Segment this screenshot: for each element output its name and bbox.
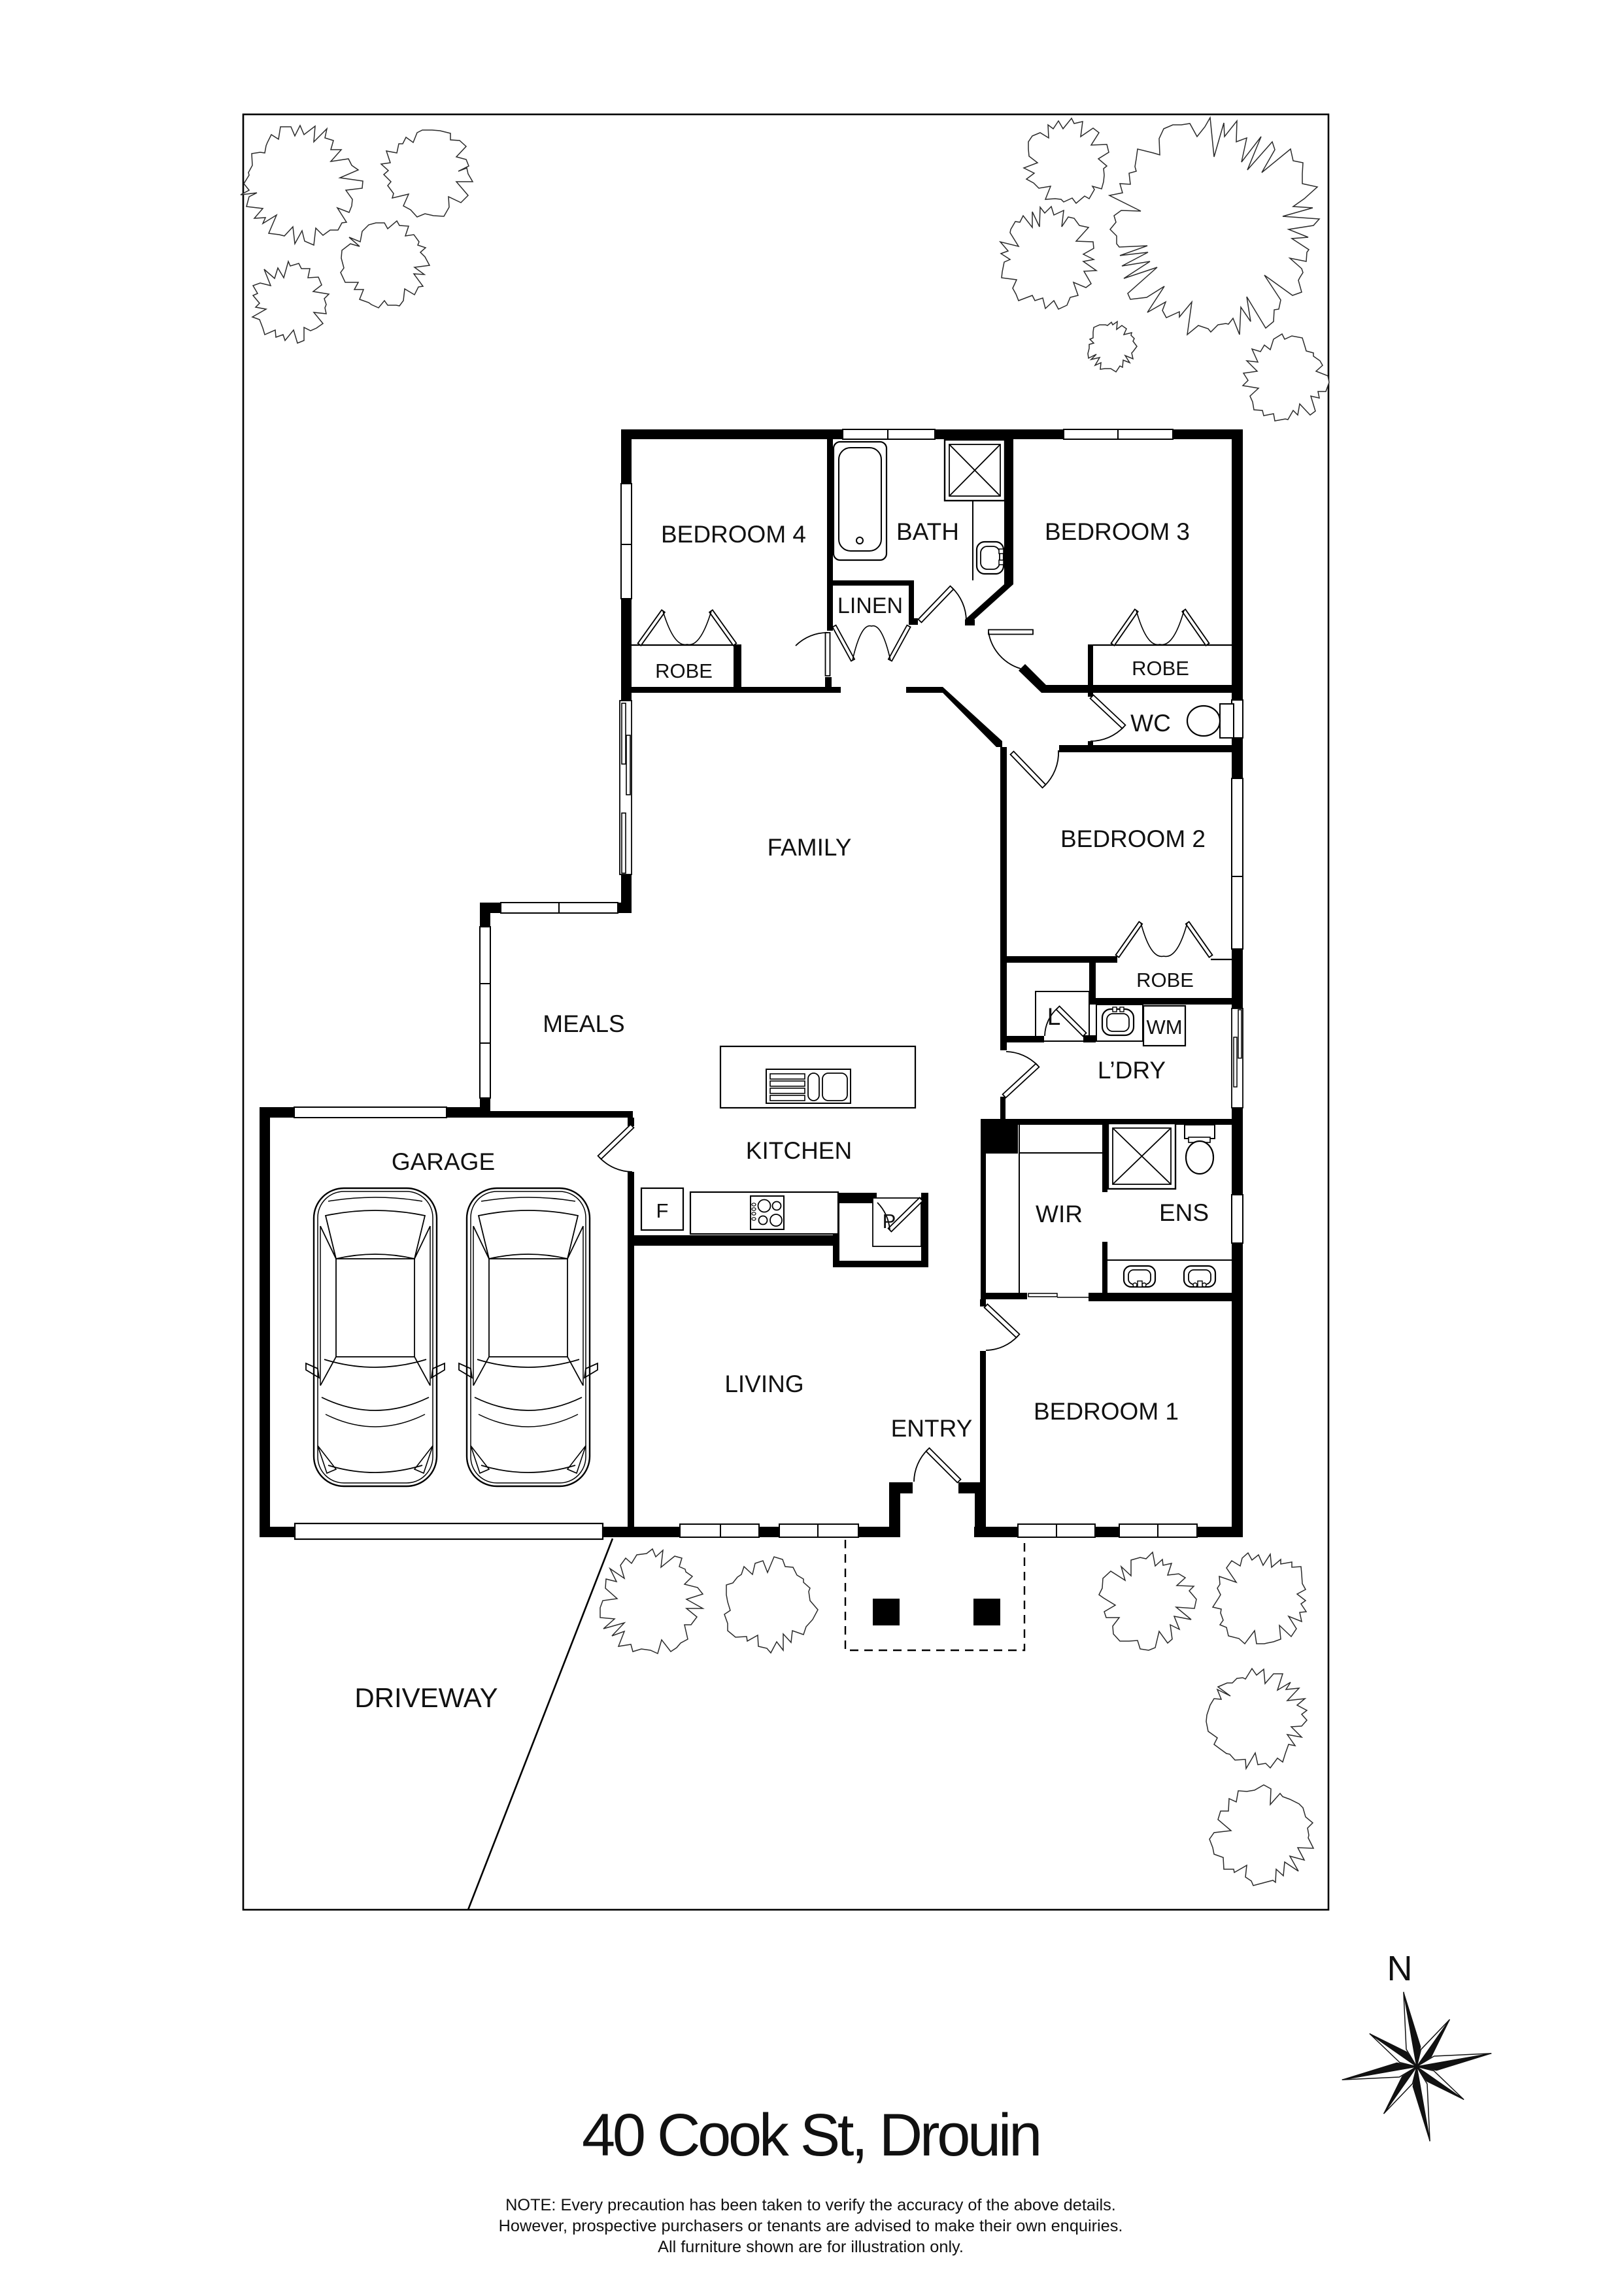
svg-text:WM: WM bbox=[1146, 1016, 1182, 1039]
svg-text:MEALS: MEALS bbox=[543, 1010, 624, 1037]
svg-text:P: P bbox=[883, 1210, 896, 1233]
svg-text:ROBE: ROBE bbox=[655, 659, 713, 682]
svg-text:KITCHEN: KITCHEN bbox=[746, 1137, 852, 1164]
svg-text:LINEN: LINEN bbox=[837, 593, 903, 618]
svg-text:NOTE: Every precaution has bee: NOTE: Every precaution has been taken to… bbox=[505, 2196, 1116, 2214]
svg-text:BEDROOM 3: BEDROOM 3 bbox=[1045, 518, 1190, 545]
svg-text:N: N bbox=[1387, 1949, 1413, 1988]
svg-text:F: F bbox=[656, 1199, 669, 1222]
svg-text:ENTRY: ENTRY bbox=[891, 1415, 973, 1442]
svg-text:40 Cook St, Drouin: 40 Cook St, Drouin bbox=[582, 2102, 1039, 2169]
svg-text:GARAGE: GARAGE bbox=[392, 1148, 495, 1175]
svg-text:WC: WC bbox=[1130, 710, 1171, 737]
svg-text:ENS: ENS bbox=[1159, 1199, 1209, 1226]
svg-text:BATH: BATH bbox=[896, 518, 959, 545]
svg-text:BEDROOM 1: BEDROOM 1 bbox=[1034, 1398, 1179, 1425]
svg-text:ROBE: ROBE bbox=[1132, 657, 1189, 680]
svg-text:L: L bbox=[1047, 1003, 1061, 1030]
svg-text:ROBE: ROBE bbox=[1136, 969, 1194, 991]
svg-text:WIR: WIR bbox=[1036, 1201, 1083, 1227]
svg-text:All furniture shown are for il: All furniture shown are for illustration… bbox=[658, 2238, 964, 2256]
svg-text:DRIVEWAY: DRIVEWAY bbox=[354, 1682, 498, 1713]
svg-text:LIVING: LIVING bbox=[724, 1371, 803, 1397]
svg-text:BEDROOM 4: BEDROOM 4 bbox=[661, 521, 806, 548]
svg-text:BEDROOM 2: BEDROOM 2 bbox=[1060, 825, 1206, 852]
svg-text:However, prospective purchaser: However, prospective purchasers or tenan… bbox=[499, 2217, 1123, 2235]
svg-text:L’DRY: L’DRY bbox=[1098, 1057, 1166, 1084]
svg-text:FAMILY: FAMILY bbox=[768, 834, 852, 861]
